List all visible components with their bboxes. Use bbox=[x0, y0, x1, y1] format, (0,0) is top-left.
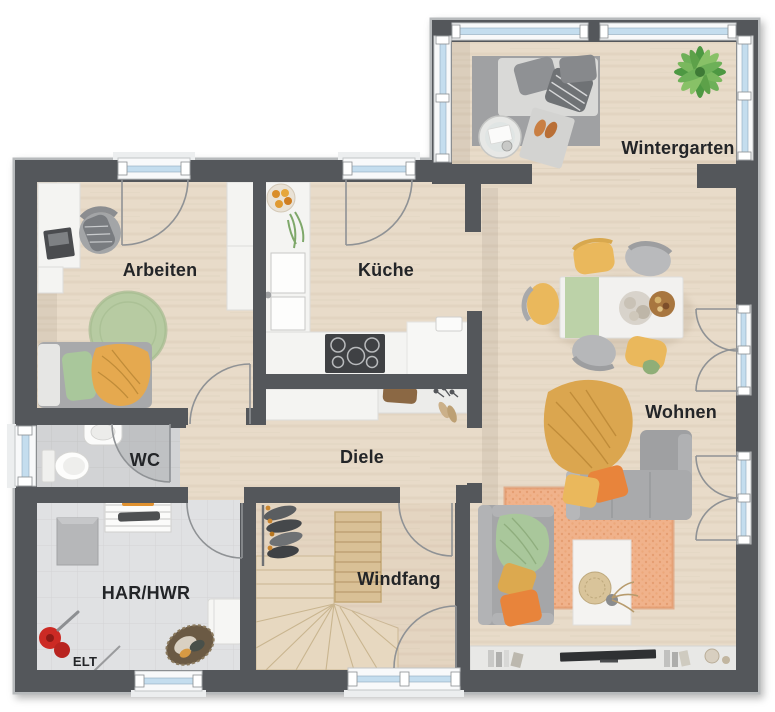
daybed-mattress bbox=[38, 344, 60, 406]
french-door-2 bbox=[737, 452, 751, 544]
window-arbeiten bbox=[113, 152, 195, 179]
entrance-door bbox=[344, 668, 464, 697]
small-appliance bbox=[436, 317, 462, 331]
room-label-arbeiten: Arbeiten bbox=[123, 260, 198, 280]
sideboard bbox=[262, 389, 378, 420]
table-runner bbox=[565, 277, 599, 338]
wall-diele-south-b bbox=[244, 487, 400, 503]
room-label-har-hwr: HAR/HWR bbox=[102, 583, 190, 603]
tv-lowboard bbox=[470, 646, 742, 672]
wall-diele-south-a bbox=[15, 487, 188, 503]
room-label-elt: ELT bbox=[73, 654, 97, 669]
desk-return bbox=[38, 267, 63, 293]
window-har bbox=[131, 671, 206, 697]
storage-box bbox=[57, 518, 98, 565]
wall-diele-wohnen-low bbox=[467, 483, 482, 503]
window-wg-left bbox=[434, 36, 451, 162]
palm-plant bbox=[674, 46, 726, 98]
decor-bowl bbox=[649, 291, 675, 317]
kitchen-sink-2 bbox=[271, 297, 305, 330]
room-label-kueche: Küche bbox=[358, 260, 414, 280]
wall-diele-south-c bbox=[456, 487, 467, 503]
wall-wc-stub bbox=[170, 408, 186, 428]
fruit-bowl bbox=[267, 184, 295, 212]
room-label-wintergarten: Wintergarten bbox=[621, 138, 734, 158]
french-door-1 bbox=[737, 305, 751, 395]
pillow bbox=[559, 54, 598, 84]
room-label-windfang: Windfang bbox=[357, 569, 440, 589]
decor-vase bbox=[705, 649, 719, 663]
wall-kueche-bottom bbox=[253, 374, 467, 389]
wall-windfang-wohnen bbox=[455, 503, 470, 672]
kitchen-sink bbox=[271, 253, 305, 293]
room-label-diele: Diele bbox=[340, 447, 384, 467]
window-wc bbox=[7, 424, 36, 488]
yellow-pillow bbox=[562, 473, 601, 508]
room-label-wc: WC bbox=[130, 450, 160, 470]
green-pillow bbox=[61, 350, 97, 401]
wall-wg-stub-right bbox=[697, 164, 738, 188]
wall-diele-wohnen bbox=[467, 311, 482, 428]
teapot bbox=[502, 141, 512, 151]
clothes-on-rack bbox=[118, 511, 160, 521]
wall-arbeiten-bottom-a bbox=[15, 408, 188, 425]
window-wg-right bbox=[737, 36, 753, 160]
floor-plan: Wintergarten Arbeiten Küche Wohnen WC Di… bbox=[0, 0, 775, 712]
room-label-wohnen: Wohnen bbox=[645, 402, 717, 422]
wall-kueche-right-top bbox=[465, 182, 481, 232]
wall-wg-stub-left bbox=[432, 164, 532, 184]
window-kueche bbox=[338, 152, 420, 179]
toilet-tank bbox=[42, 450, 55, 482]
